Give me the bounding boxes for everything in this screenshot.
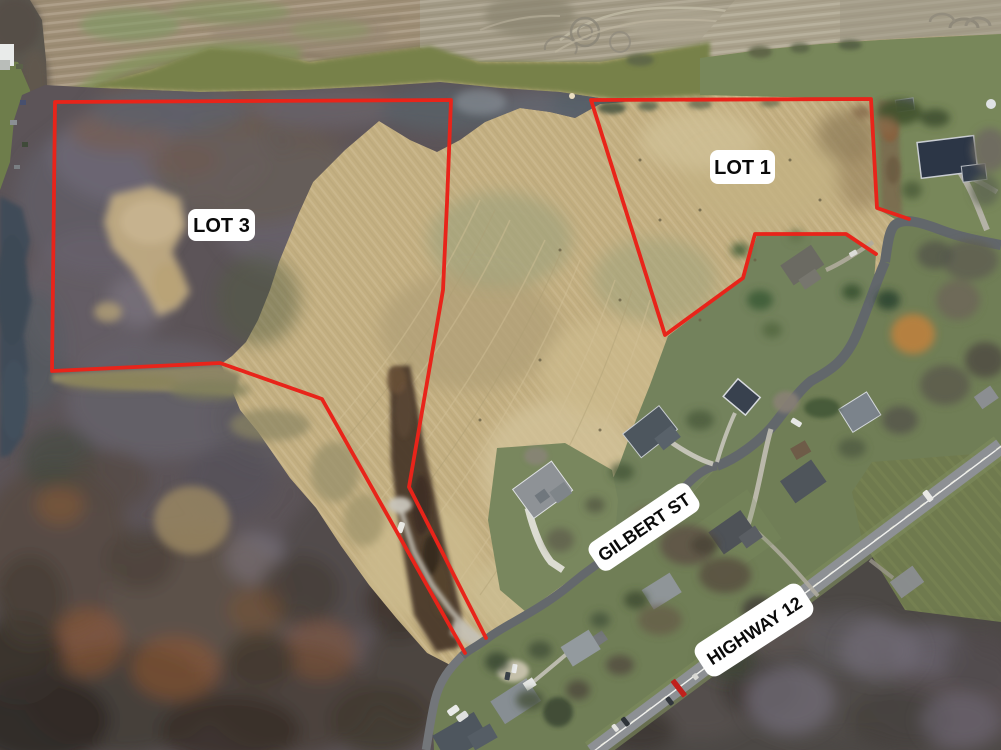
svg-text:LOT 3: LOT 3	[193, 215, 250, 237]
svg-text:LOT 1: LOT 1	[714, 157, 771, 179]
